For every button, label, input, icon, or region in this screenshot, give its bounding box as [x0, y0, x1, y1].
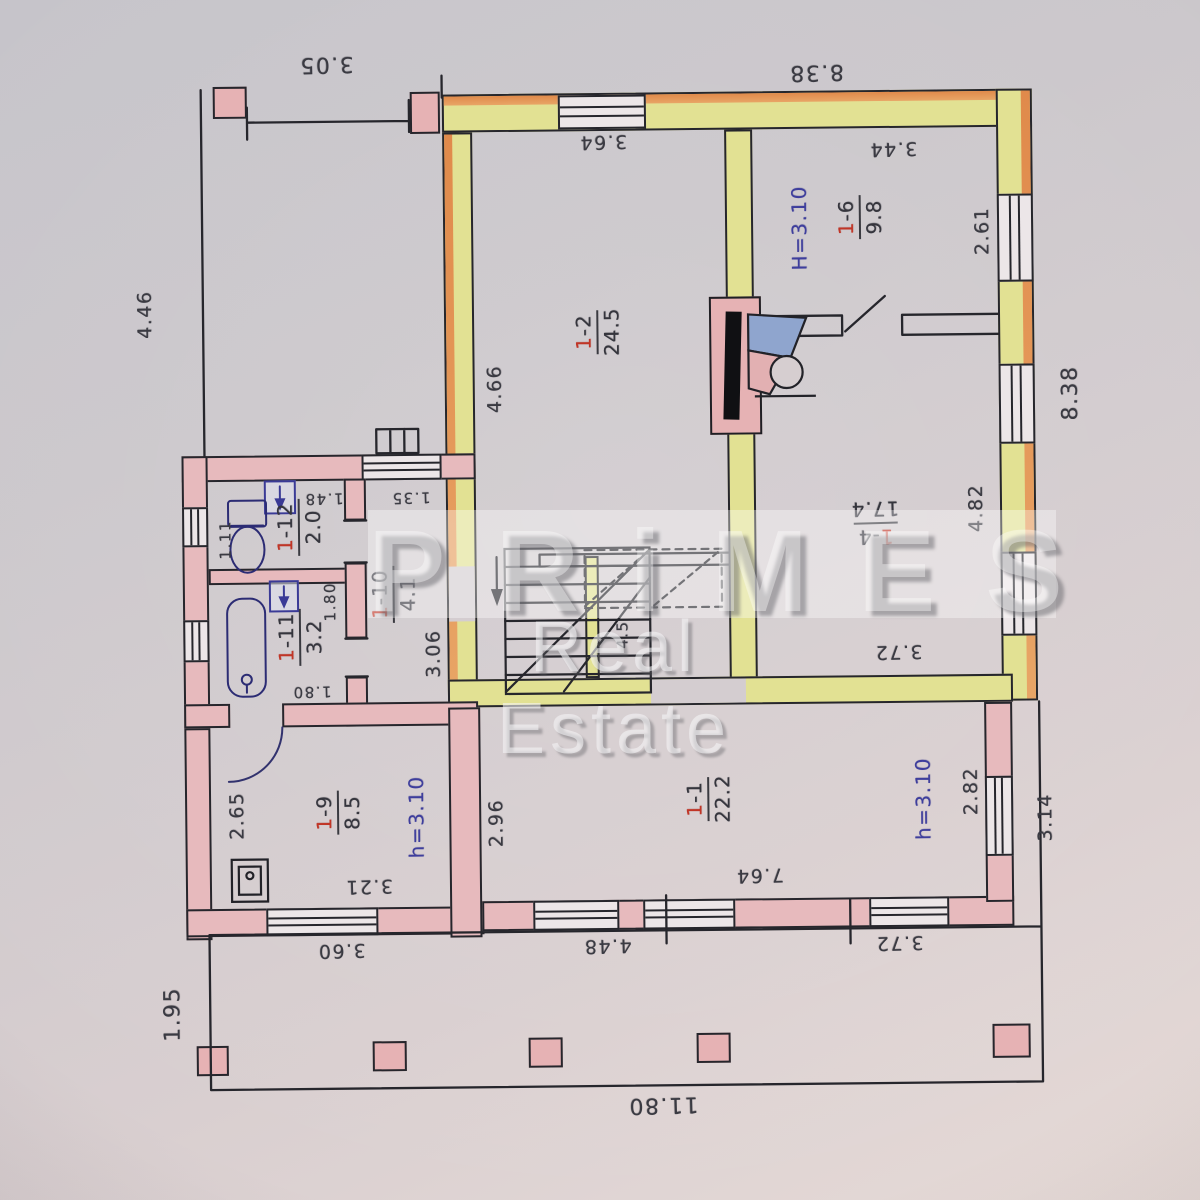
room-label-1-1: 1-122.2 — [676, 771, 741, 828]
dim-porch-depth: 1.95 — [159, 982, 186, 1046]
dim-room11-depth: 2.96 — [483, 791, 510, 855]
dim-terrace-top: 3.05 — [294, 51, 359, 79]
dim-room16-width: 3.44 — [861, 135, 926, 163]
corner-fireplace-icon — [748, 314, 816, 397]
dim-porch-bottom-mid: 4.48 — [575, 932, 640, 960]
dim-room11-width: 7.64 — [728, 861, 793, 889]
hatch-symbol — [376, 429, 418, 453]
height-room16: H=3.10 — [786, 178, 813, 278]
dim-room16-window: 2.61 — [969, 199, 996, 263]
dim-porch-bottom-right: 3.72 — [867, 929, 932, 957]
terrace-outline — [201, 76, 446, 457]
dim-house-width: 11.80 — [627, 1089, 700, 1121]
room-label-1-11: 1-113.2 — [268, 609, 333, 666]
vent-arrow-head-bath — [280, 597, 288, 606]
dim-room19-depth: 2.65 — [224, 784, 251, 848]
door-leaf-room16 — [845, 296, 885, 331]
dim-room11-window: 2.82 — [958, 759, 985, 823]
room-label-1-12: 1-122.0 — [267, 499, 332, 556]
stove-icon — [232, 859, 268, 901]
dim-porch-bottom-left: 3.60 — [309, 937, 374, 965]
dim-porch-right: 3.14 — [1032, 785, 1059, 849]
floor-plan-photo: 3.05 4.46 8.38 8.38 3.64 4.66 3.44 2.61 … — [0, 0, 1200, 1200]
room-label-1-9: 1-98.5 — [306, 784, 371, 841]
dim-room12-width: 3.64 — [571, 128, 636, 156]
height-room19: h=3.10 — [403, 767, 430, 867]
dim-room12-depth: 4.66 — [481, 357, 508, 421]
watermark-tagline: Real Estate — [424, 606, 804, 770]
dim-main-top: 8.38 — [784, 59, 849, 87]
bathtub-icon — [227, 599, 266, 697]
dim-room14-width: 3.72 — [866, 638, 931, 666]
dim-wc-depth: 1.11 — [213, 510, 238, 570]
dim-room19-width: 3.21 — [337, 873, 402, 901]
door-arc-room19 — [228, 727, 283, 782]
room-label-1-2: 1-224.5 — [565, 304, 630, 361]
dimension-ticks — [666, 893, 851, 945]
height-room11: h=3.10 — [910, 748, 937, 848]
room-label-1-6: 1-69.8 — [828, 189, 893, 246]
dim-bath-depth: 1.80 — [282, 679, 343, 705]
dim-terrace-left: 4.46 — [132, 283, 159, 347]
dim-main-right: 8.38 — [1057, 361, 1084, 425]
